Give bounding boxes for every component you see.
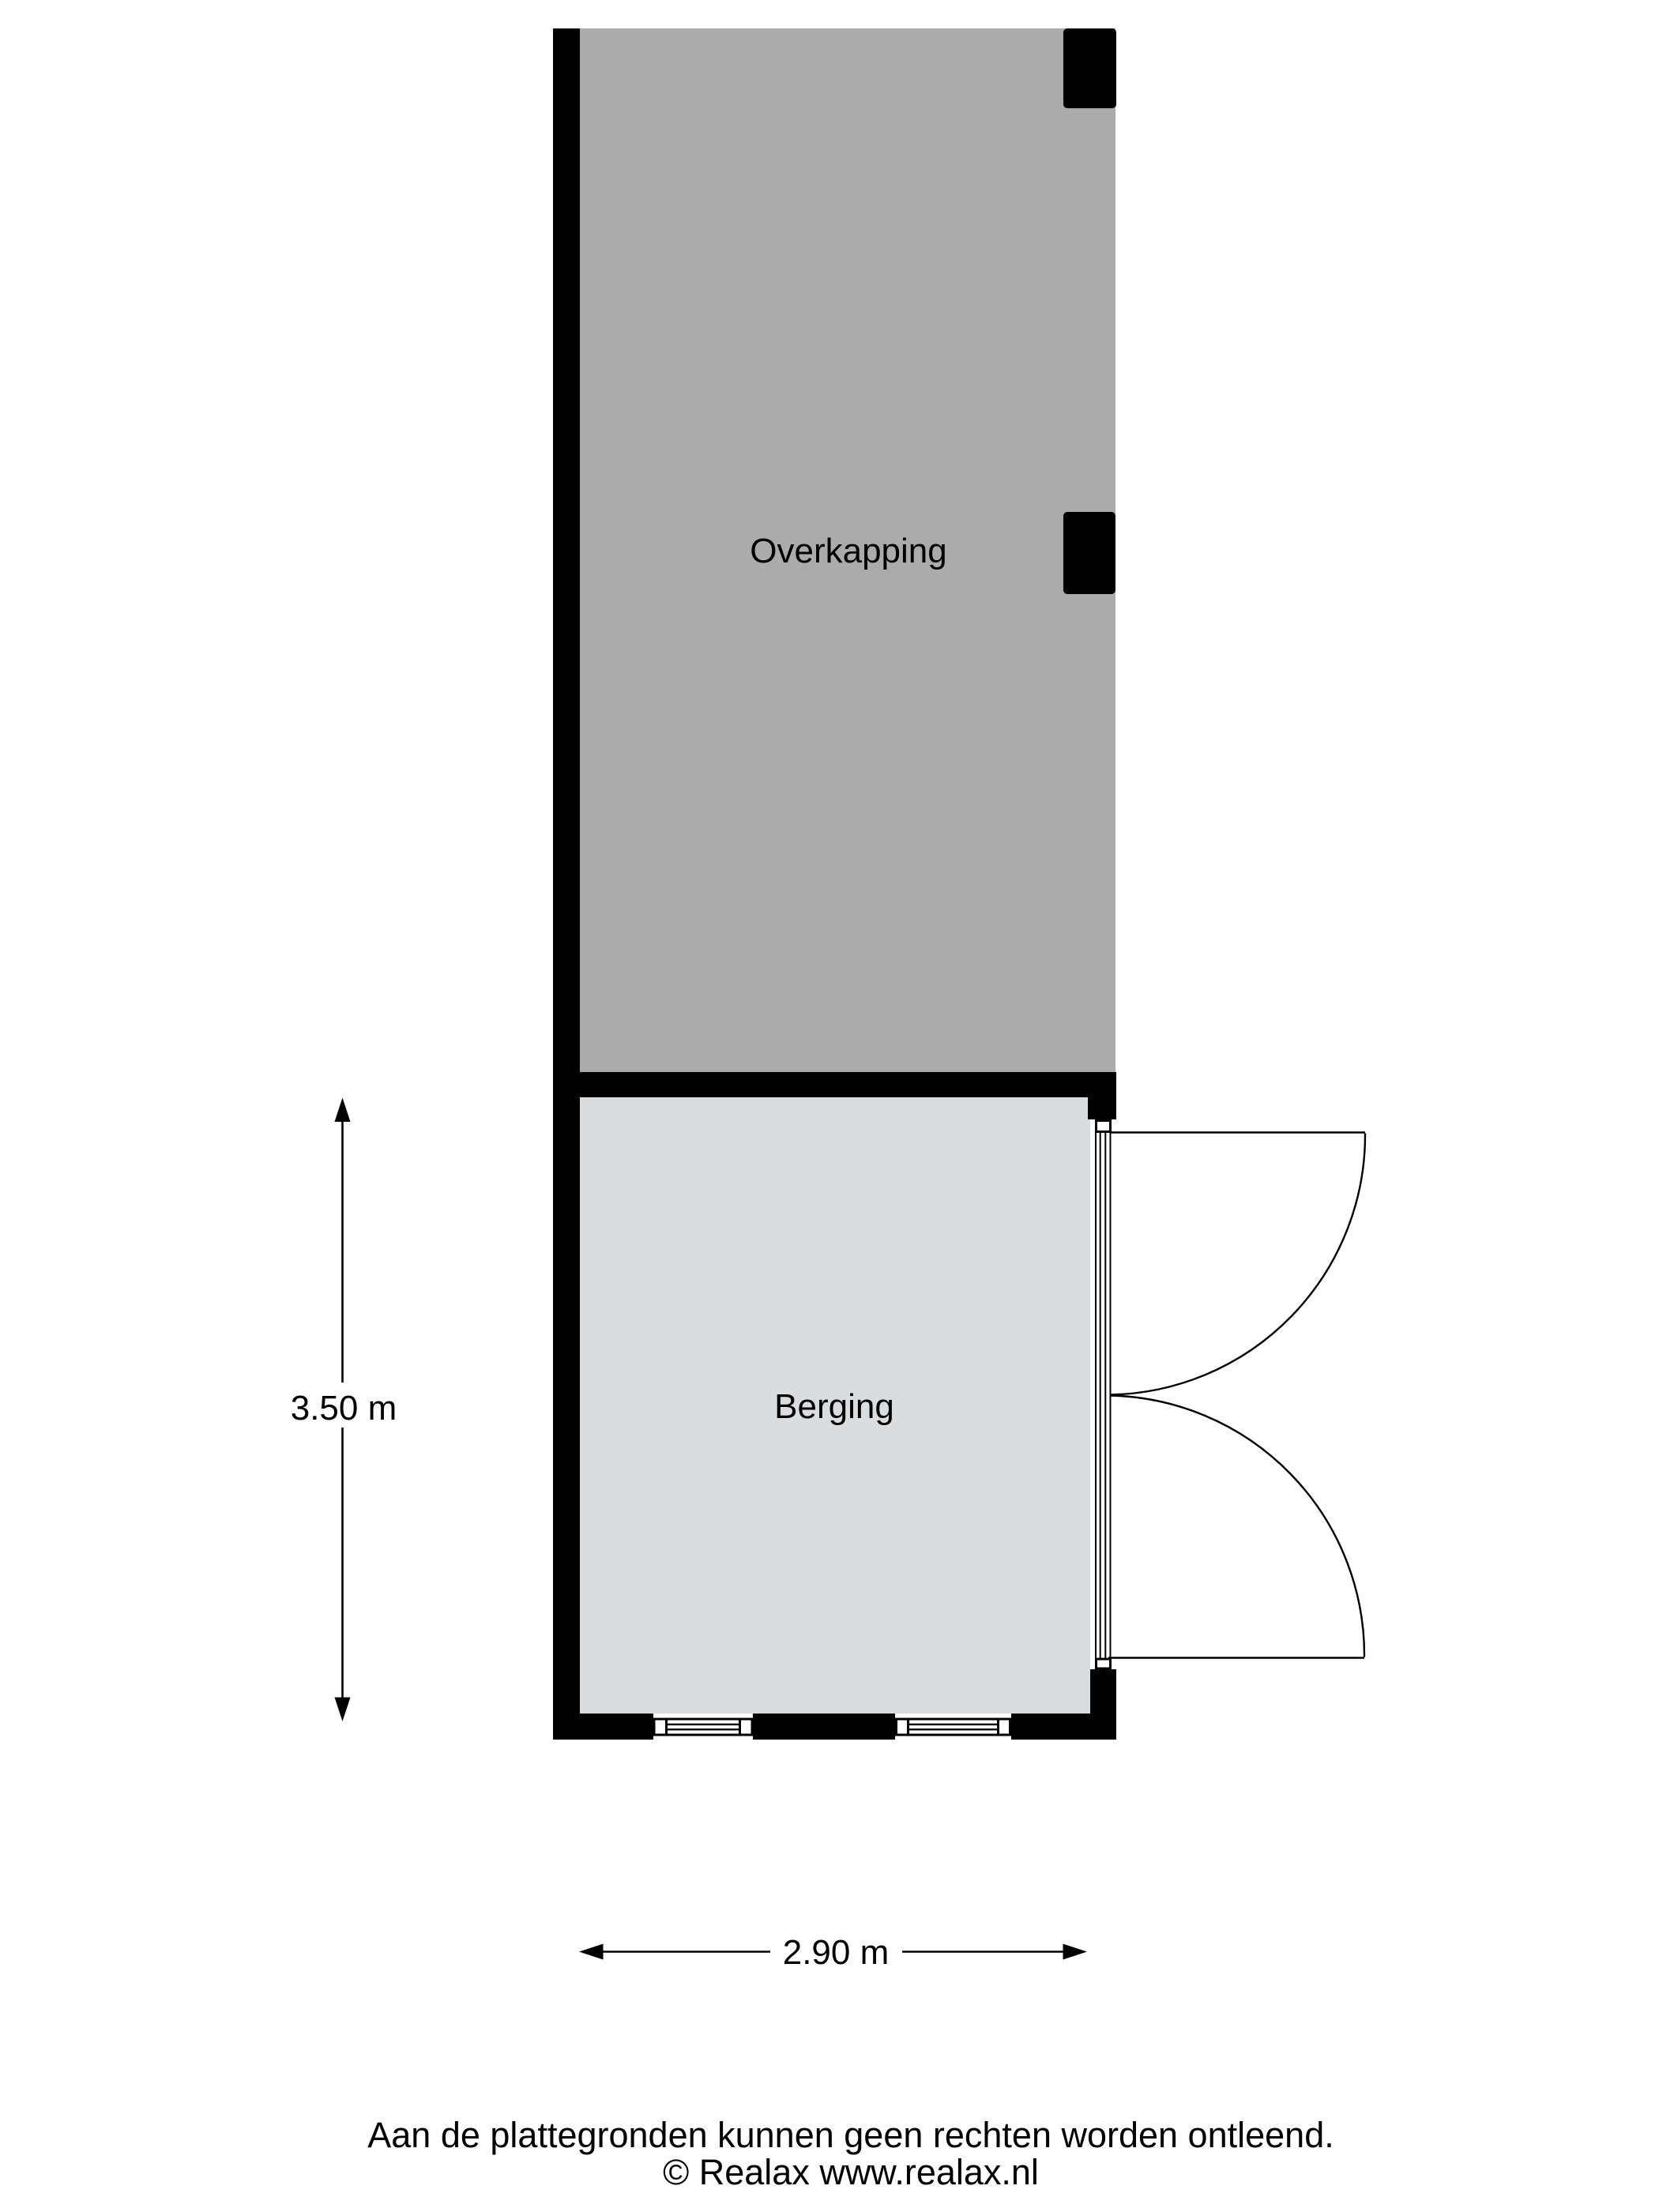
svg-text:2.90 m: 2.90 m (783, 1933, 890, 1972)
svg-text:Berging: Berging (774, 1387, 894, 1426)
svg-text:© Realax www.realax.nl: © Realax www.realax.nl (663, 2152, 1039, 2192)
svg-text:3.50 m: 3.50 m (291, 1389, 397, 1428)
svg-text:Overkapping: Overkapping (750, 532, 946, 570)
svg-text:Aan de plattegronden kunnen ge: Aan de plattegronden kunnen geen rechten… (367, 2115, 1334, 2155)
